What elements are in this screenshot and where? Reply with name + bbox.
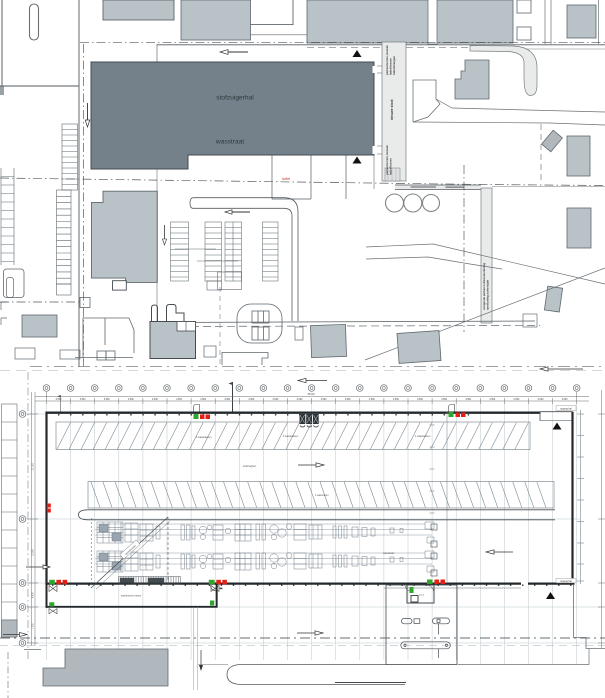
svg-text:luifel: luifel — [282, 176, 290, 181]
svg-text:4.500: 4.500 — [489, 399, 495, 401]
svg-text:4.500: 4.500 — [104, 399, 110, 401]
svg-text:4.500: 4.500 — [56, 399, 62, 401]
svg-text:12.800: 12.800 — [33, 548, 35, 556]
svg-text:4.500: 4.500 — [465, 399, 471, 401]
svg-text:aansluiting achterzijde: aansluiting achterzijde — [486, 279, 490, 310]
svg-text:4.500: 4.500 — [128, 399, 134, 401]
svg-text:4 wasplaatsen: 4 wasplaatsen — [415, 435, 431, 438]
svg-text:4.500: 4.500 — [200, 399, 206, 401]
svg-text:4.500: 4.500 — [417, 399, 423, 401]
svg-text:4.800: 4.800 — [33, 592, 35, 598]
svg-text:21.000: 21.000 — [33, 462, 35, 470]
svg-text:4.500: 4.500 — [514, 399, 520, 401]
svg-text:4.500: 4.500 — [321, 399, 327, 401]
svg-text:4.500: 4.500 — [345, 399, 351, 401]
svg-text:ingang hal: ingang hal — [560, 580, 572, 583]
svg-text:4.500: 4.500 — [176, 399, 182, 401]
svg-text:wasstraat: wasstraat — [383, 551, 394, 555]
svg-text:halen/brengen: halen/brengen — [392, 56, 396, 75]
svg-text:4.500: 4.500 — [369, 399, 375, 401]
svg-text:4.500: 4.500 — [152, 399, 158, 401]
svg-text:45.000: 45.000 — [307, 394, 315, 396]
svg-text:4.500: 4.500 — [80, 399, 86, 401]
svg-text:7.200: 7.200 — [33, 623, 35, 629]
svg-text:laden/lossen: laden/lossen — [389, 158, 393, 175]
svg-text:4.500: 4.500 — [224, 399, 230, 401]
svg-text:4.500: 4.500 — [248, 399, 254, 401]
svg-text:4.500: 4.500 — [562, 399, 568, 401]
svg-text:6 wasplaatsen: 6 wasplaatsen — [196, 436, 212, 439]
svg-text:wachtruimte ruimte: wachtruimte ruimte — [121, 595, 142, 598]
svg-text:wasstraat: wasstraat — [215, 139, 244, 146]
svg-text:stofzuigerhal: stofzuigerhal — [216, 95, 254, 102]
svg-text:4.500: 4.500 — [538, 399, 544, 401]
svg-text:ingang hal: ingang hal — [560, 407, 572, 410]
svg-text:4.500: 4.500 — [393, 399, 399, 401]
svg-text:4.500: 4.500 — [297, 399, 303, 401]
svg-text:nieuwe sloot: nieuwe sloot — [390, 99, 394, 120]
svg-text:6 wasplaatsen: 6 wasplaatsen — [283, 435, 299, 438]
svg-text:4 wasstraten: 4 wasstraten — [315, 494, 329, 497]
svg-text:stofzuighal: stofzuighal — [243, 464, 256, 468]
svg-text:4.500: 4.500 — [441, 399, 447, 401]
svg-text:4.500: 4.500 — [273, 399, 279, 401]
